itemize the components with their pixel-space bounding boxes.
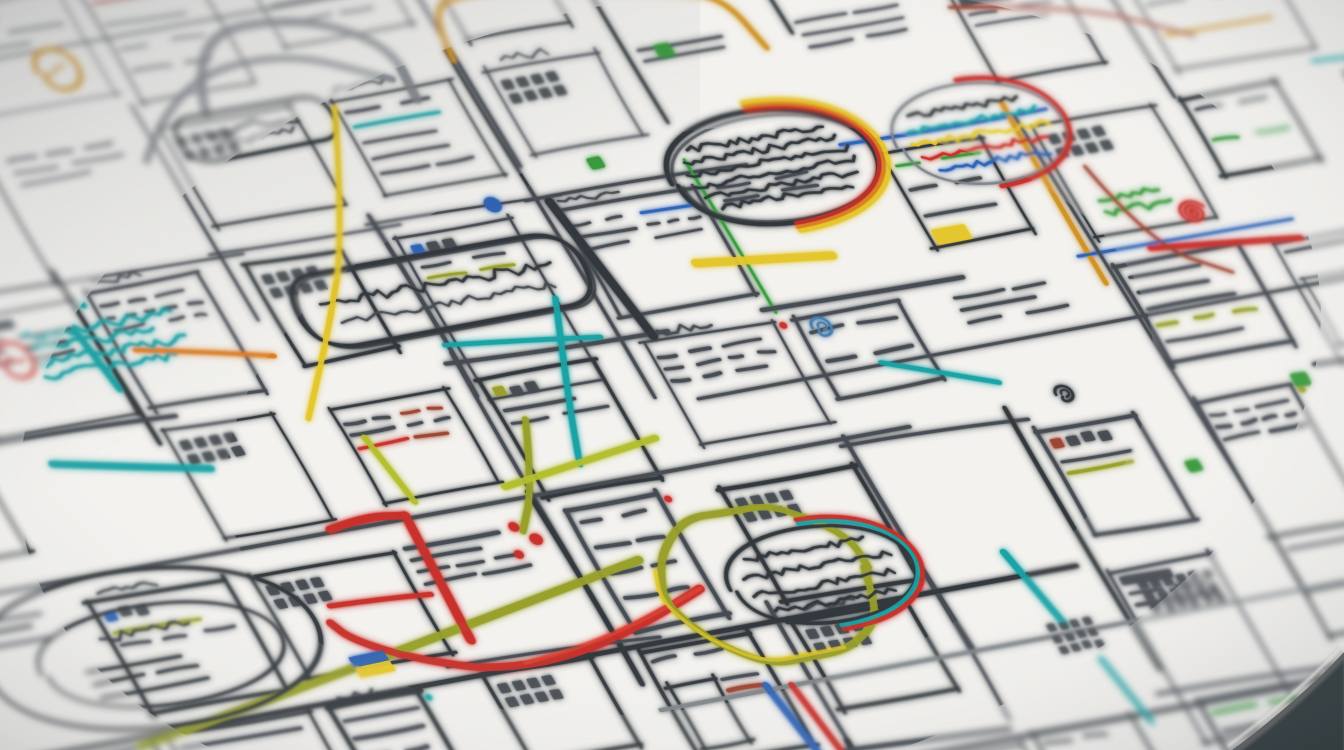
sketch-photo [0,0,1344,750]
sketch-svg [0,0,1344,750]
corner-shade [0,0,700,520]
